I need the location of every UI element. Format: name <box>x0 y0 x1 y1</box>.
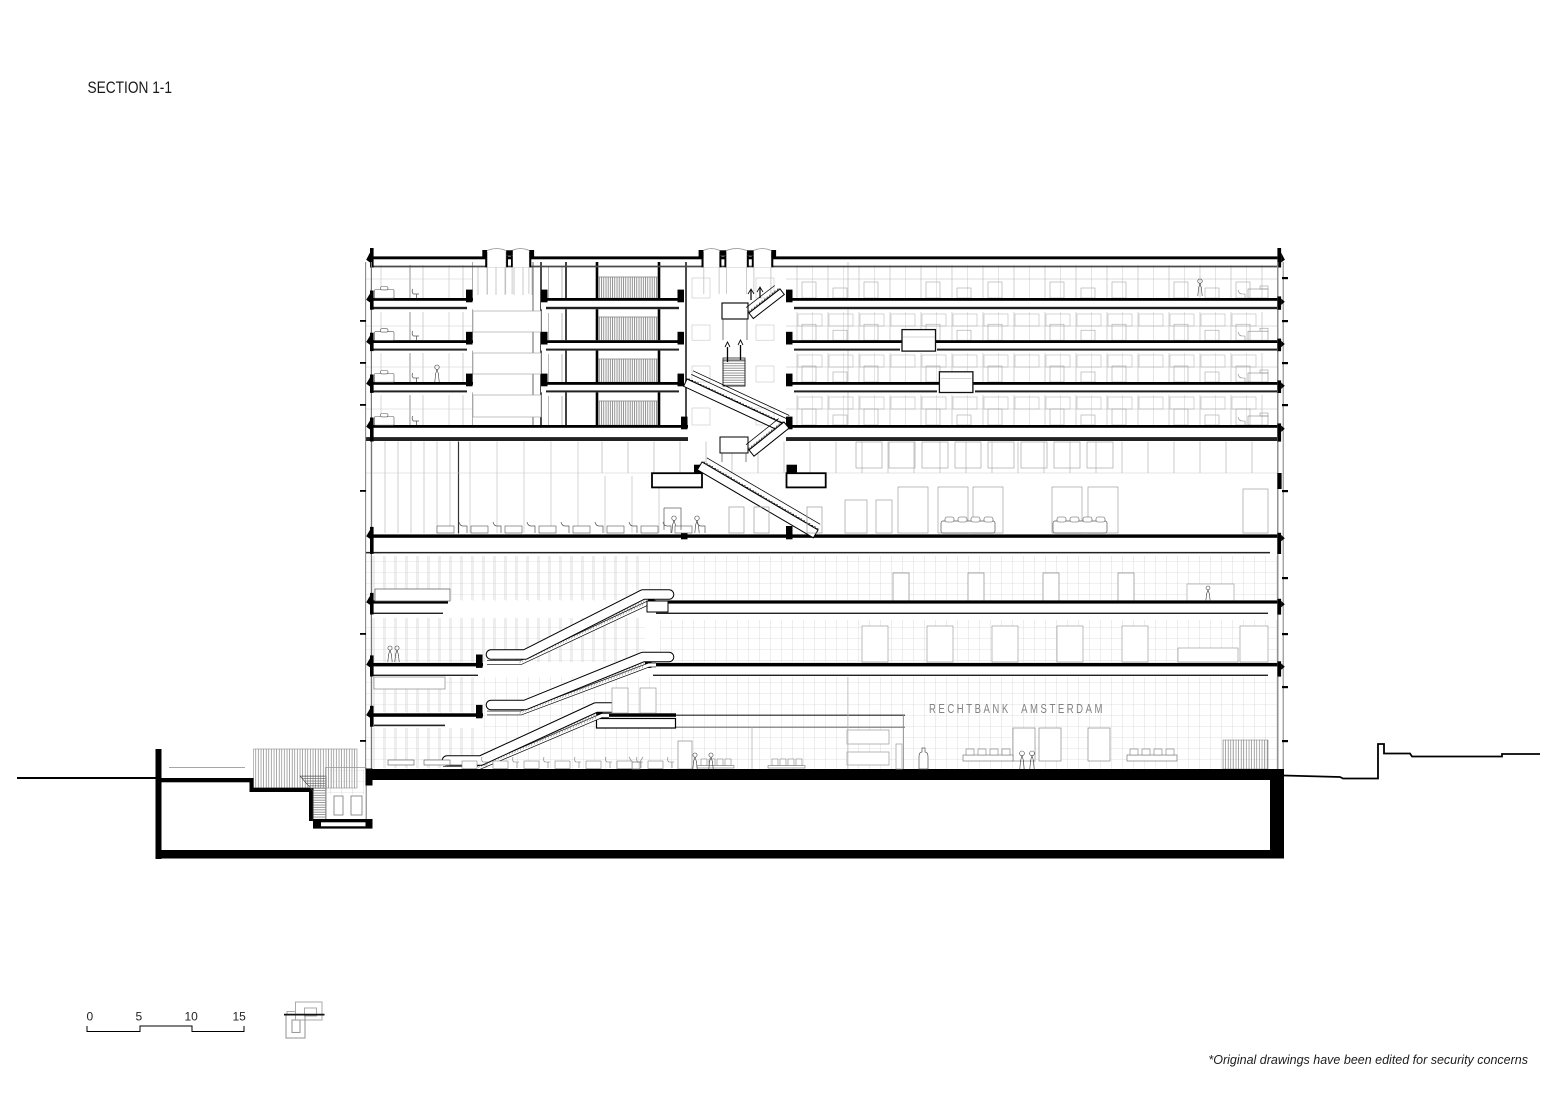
svg-text:15: 15 <box>233 1010 247 1024</box>
svg-text:*Original drawings have been e: *Original drawings have been edited for … <box>1208 1053 1528 1067</box>
svg-text:5: 5 <box>136 1010 143 1024</box>
svg-text:10: 10 <box>185 1010 199 1024</box>
svg-text:0: 0 <box>87 1010 94 1024</box>
svg-text:SECTION 1-1: SECTION 1-1 <box>88 79 173 97</box>
svg-text:RECHTBANK AMSTERDAM: RECHTBANK AMSTERDAM <box>929 701 1105 716</box>
